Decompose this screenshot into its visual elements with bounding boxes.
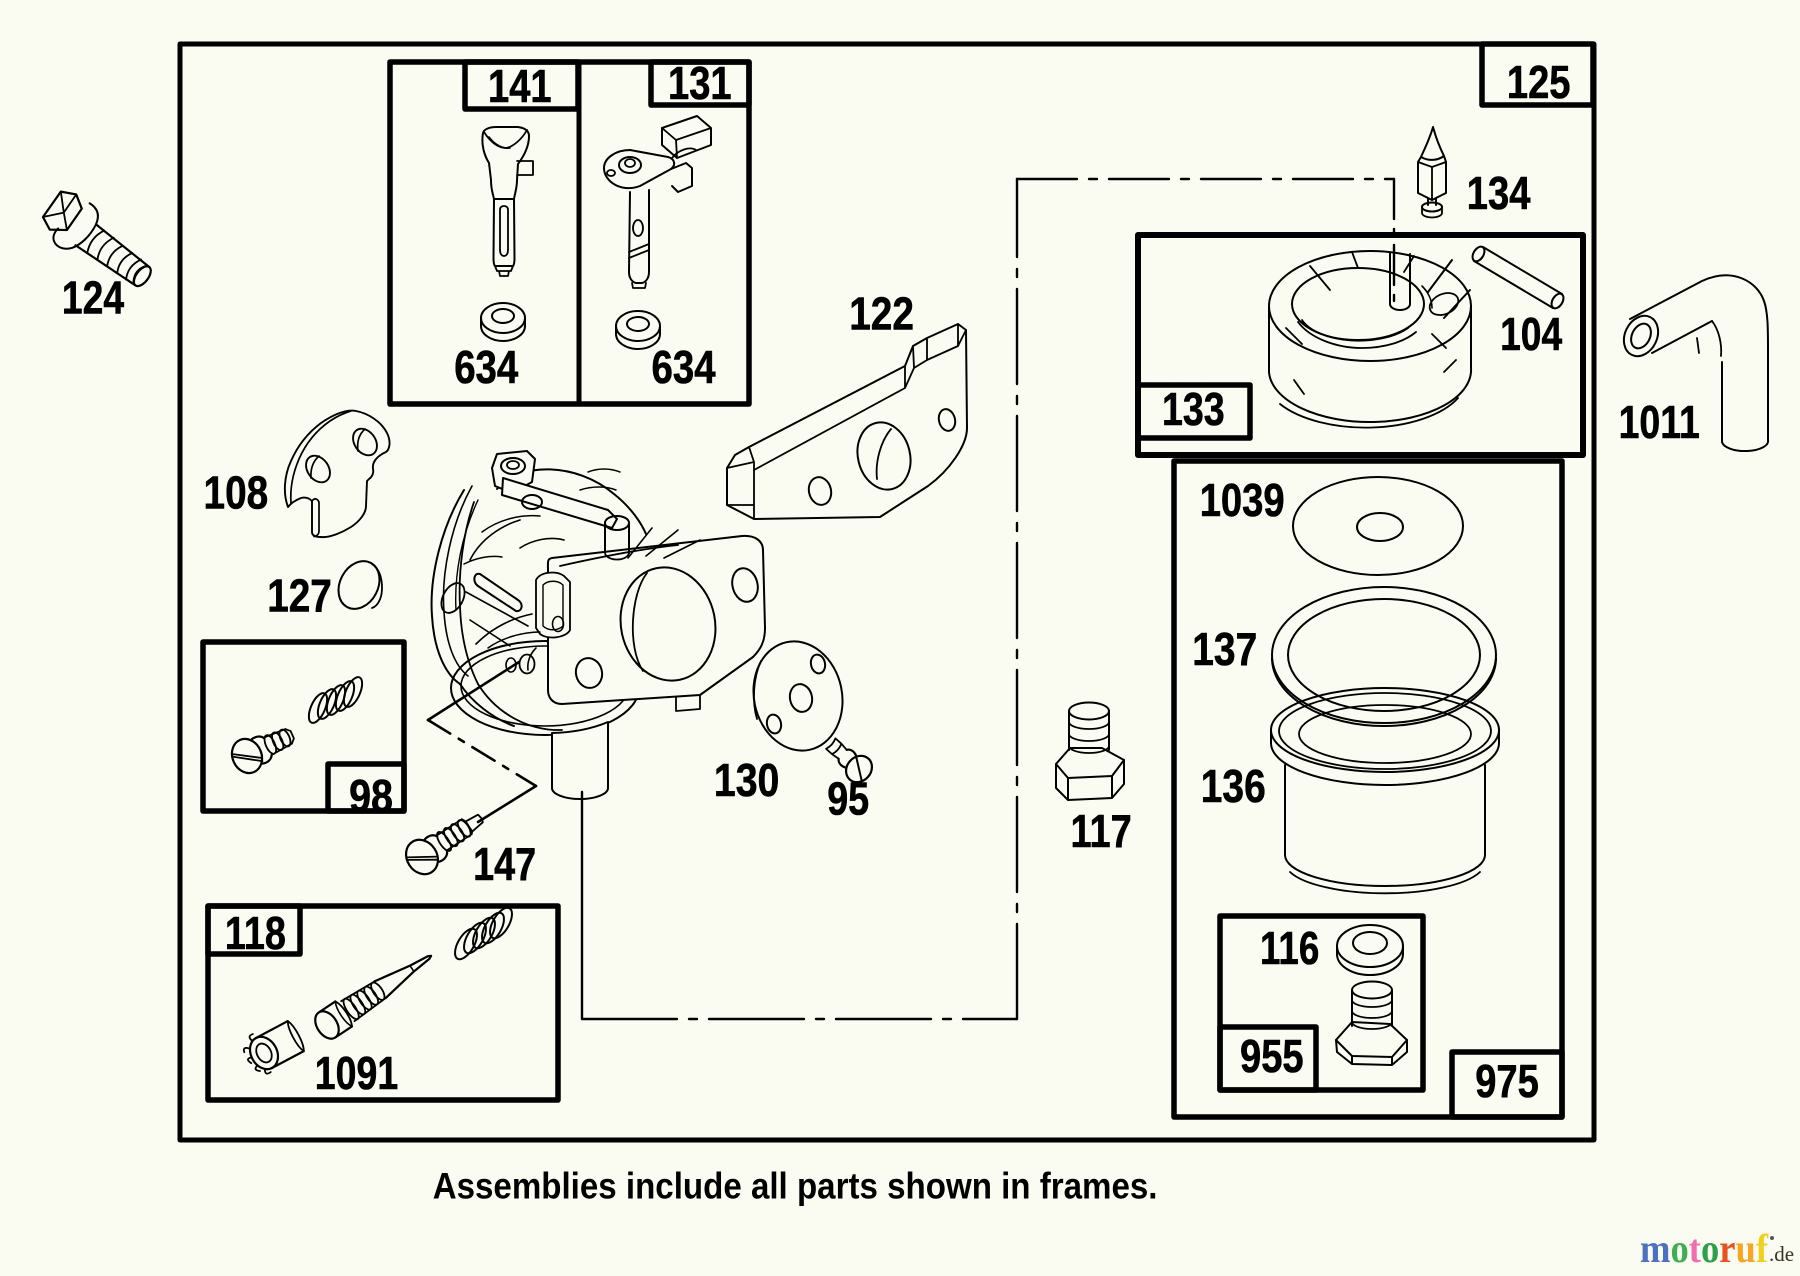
svg-text:141: 141 (488, 60, 552, 112)
svg-text:130: 130 (714, 754, 780, 806)
svg-text:1039: 1039 (1200, 474, 1285, 526)
svg-text:motoruf: motoruf (1640, 1226, 1769, 1271)
svg-text:133: 133 (1162, 383, 1225, 435)
svg-text:117: 117 (1071, 805, 1132, 857)
svg-text:955: 955 (1240, 1030, 1304, 1082)
svg-text:124: 124 (62, 272, 125, 324)
svg-text:1091: 1091 (315, 1047, 398, 1099)
svg-text:118: 118 (225, 907, 286, 959)
svg-text:104: 104 (1500, 308, 1562, 360)
svg-text:.de: .de (1769, 1242, 1794, 1266)
svg-text:95: 95 (827, 773, 869, 825)
svg-text:634: 634 (454, 341, 518, 393)
svg-text:127: 127 (267, 570, 332, 622)
svg-text:147: 147 (473, 838, 536, 890)
svg-text:137: 137 (1192, 623, 1257, 675)
svg-text:1011: 1011 (1619, 396, 1700, 448)
svg-text:98: 98 (349, 770, 393, 822)
svg-text:116: 116 (1260, 922, 1319, 974)
svg-text:634: 634 (652, 341, 716, 393)
svg-text:136: 136 (1201, 760, 1266, 812)
svg-text:134: 134 (1467, 167, 1531, 219)
svg-text:122: 122 (849, 287, 914, 339)
svg-text:108: 108 (204, 467, 269, 519)
svg-text:125: 125 (1507, 56, 1571, 108)
svg-text:975: 975 (1475, 1055, 1539, 1107)
svg-text:Assemblies include all parts s: Assemblies include all parts shown in fr… (433, 1166, 1158, 1207)
svg-text:131: 131 (668, 57, 732, 109)
